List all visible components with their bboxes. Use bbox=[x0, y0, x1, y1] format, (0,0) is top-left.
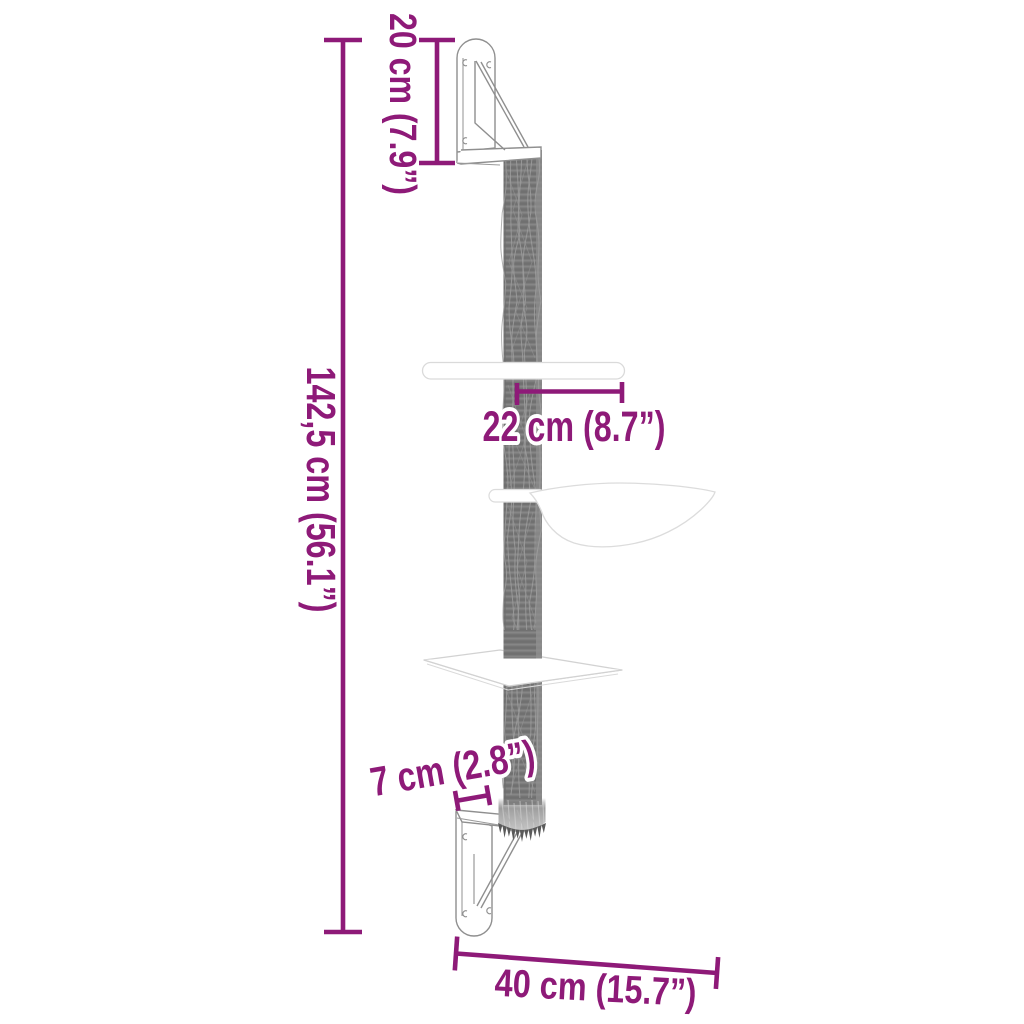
svg-text:142,5 cm (56.1”): 142,5 cm (56.1”) bbox=[298, 367, 344, 613]
svg-text:20 cm (7.9”): 20 cm (7.9”) bbox=[381, 13, 423, 195]
svg-text:22 cm (8.7”): 22 cm (8.7”) bbox=[483, 403, 666, 451]
